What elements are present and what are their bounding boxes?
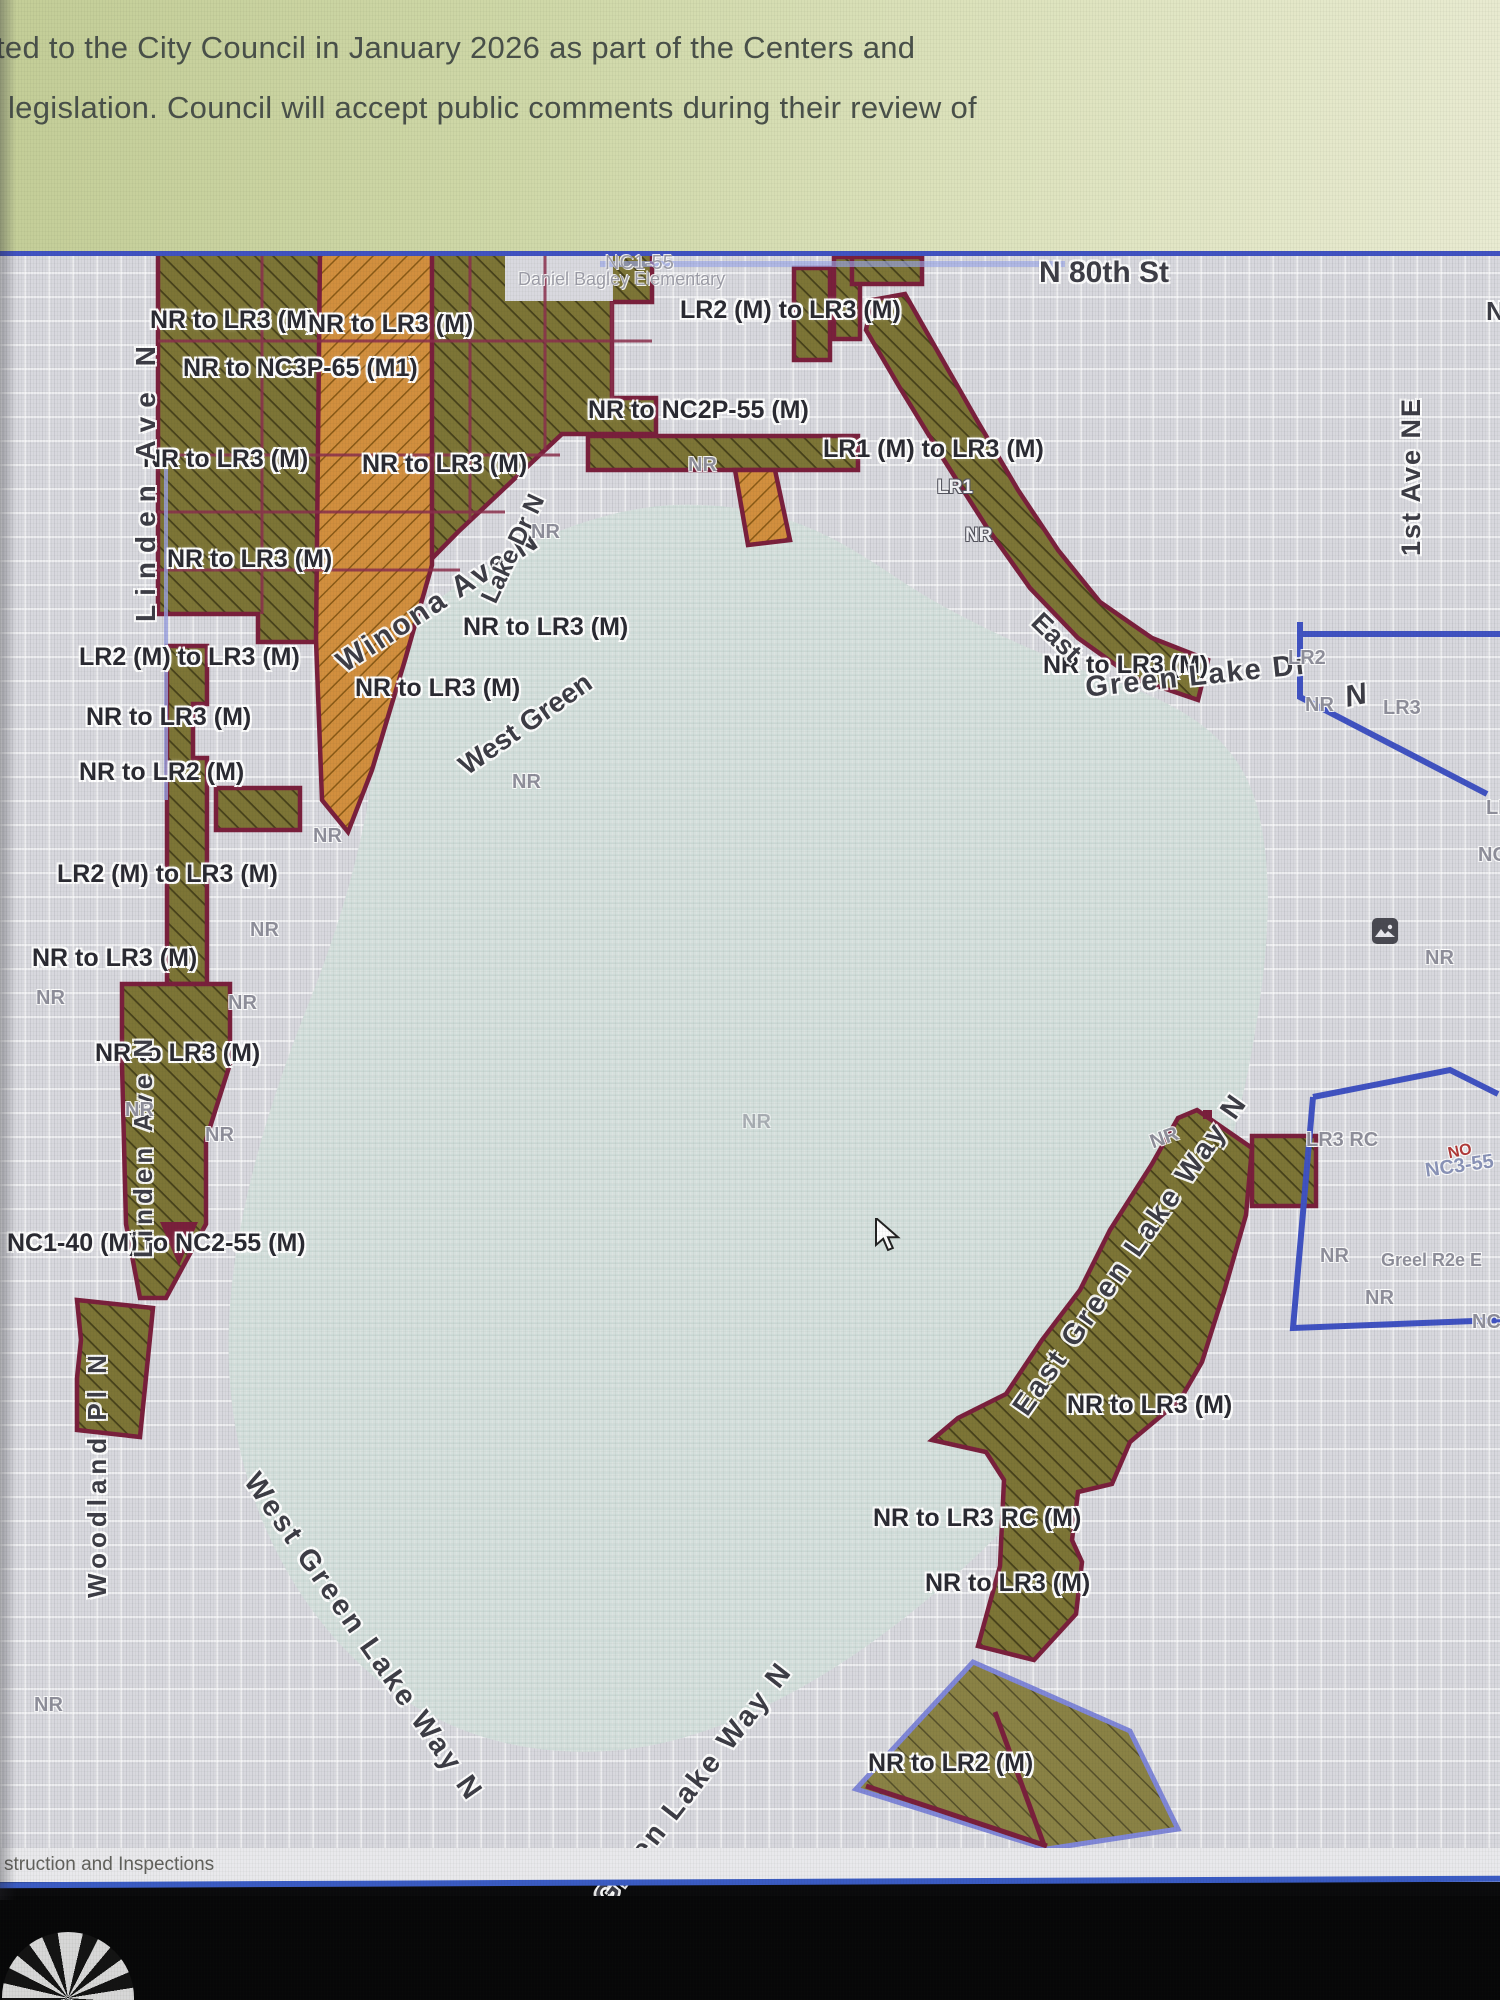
rezone-label: NR to LR3 (M) [95, 1041, 260, 1066]
zone-code-lr2: LR2 [1288, 648, 1326, 668]
banner-line-1: ted to the City Council in January 2026 … [0, 30, 915, 66]
screen-black-band [0, 1896, 1500, 2000]
rezone-label: NR to LR3 (M) [32, 946, 197, 971]
rezone-label: NR to NC2P-55 (M) [588, 398, 809, 423]
zone-code-nr: NR [228, 993, 257, 1013]
rezone-label: NR to LR3 (M) [308, 312, 473, 337]
banner-line-2: legislation. Council will accept public … [8, 90, 977, 126]
zone-code-lr-cut: LR [1486, 798, 1500, 818]
rezone-label: NR to LR3 (M) [362, 452, 527, 477]
zone-code-lr3-rc: LR3 RC [1306, 1130, 1378, 1150]
rezone-label: LR2 (M) to LR3 (M) [680, 298, 901, 323]
zone-code-nc1-55: NC1-55 [605, 253, 674, 273]
street-label-linden-ave-n-upper: Linden Ave N [132, 337, 160, 622]
footer-partial-text: struction and Inspections [4, 1854, 214, 1876]
rezone-label: NR to LR3 (M) [86, 705, 251, 730]
zone-code-nr: NR [1425, 948, 1454, 968]
street-label-linden-ave-n-lower: Linden Ave N [130, 1034, 156, 1258]
zone-code-nr: NR [125, 1100, 154, 1120]
page-text-banner: ted to the City Council in January 2026 … [0, 0, 1500, 251]
zone-code-nr: NR [250, 920, 279, 940]
rezone-label: NR to LR3 (M) [143, 447, 308, 472]
street-label-woodland-pl-n: Woodland Pl N [84, 1350, 110, 1598]
rezone-label: NR to LR2 (M) [79, 760, 244, 785]
zone-code-nr: NR [742, 1112, 771, 1132]
street-label-n-80th-st: N 80th St [1039, 258, 1169, 288]
screen-photo: { "banner": { "line1": "ted to the City … [0, 0, 1500, 2000]
rezone-label: NR to NC3P-65 (M1) [183, 356, 418, 381]
zoning-map[interactable]: NR to LR3 (M) NR to LR3 (M) NR to NC3P-6… [0, 251, 1500, 1882]
rezone-label: NR to LR3 (M) [167, 547, 332, 572]
zone-code-nr: NR [512, 772, 541, 792]
zone-code-nc-cut: NC [1478, 845, 1500, 865]
rezone-label: LR2 (M) to LR3 (M) [57, 862, 278, 887]
zone-code-nr: NR [34, 1695, 63, 1715]
rezone-label: NR to LR3 (M) [925, 1571, 1090, 1596]
zone-code-lr1: LR1 [937, 478, 973, 497]
zone-code-nr: NR [1305, 695, 1334, 715]
zone-code-nr: NR [205, 1125, 234, 1145]
zone-code-nr: NR [531, 522, 560, 542]
zone-code-nr: NR [313, 826, 342, 846]
rezone-label: NR to LR3 (M) [150, 308, 315, 333]
image-marker-icon[interactable] [1372, 918, 1398, 944]
rezone-label: NR to LR3 (M) [355, 676, 520, 701]
rezone-label: NR to LR3 RC (M) [873, 1506, 1081, 1531]
mouse-cursor [874, 1218, 904, 1257]
rezone-label: NR to LR3 (M) [463, 615, 628, 640]
zone-code-nr: NR [688, 455, 717, 475]
street-label-n-cut: N [1486, 298, 1500, 324]
rezone-label: LR2 (M) to LR3 (M) [79, 645, 300, 670]
zone-code-nr: NR [1365, 1288, 1394, 1308]
zone-code-nr: NR [1320, 1246, 1349, 1266]
zone-code-nc-cut: NC [1472, 1312, 1500, 1332]
zone-code-overlap-fragment: Greel R2e E [1381, 1251, 1482, 1269]
zone-code-nr: NR [36, 988, 65, 1008]
rezone-label: NR to LR2 (M) [868, 1751, 1033, 1776]
street-label-1st-ave-ne: 1st Ave NE [1398, 397, 1425, 556]
rezone-label: LR1 (M) to LR3 (M) [823, 437, 1044, 462]
zone-code-nr: NR [965, 526, 992, 545]
rezone-label: NR to LR3 (M) [1067, 1393, 1232, 1418]
zone-code-lr3: LR3 [1383, 698, 1421, 718]
